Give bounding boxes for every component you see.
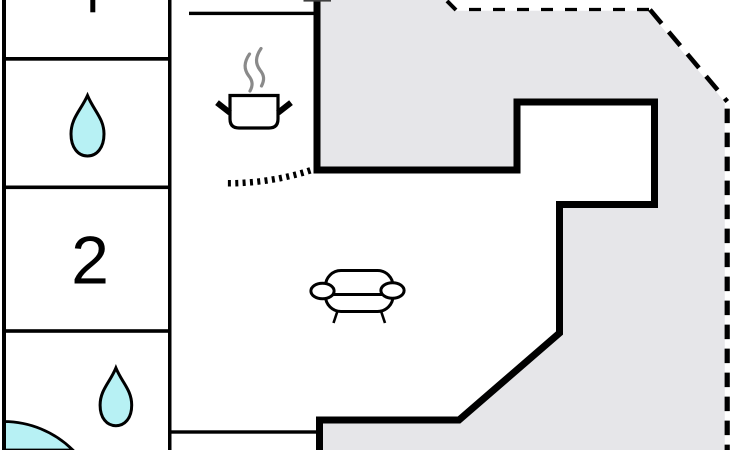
svg-text:2: 2 [71, 223, 109, 299]
